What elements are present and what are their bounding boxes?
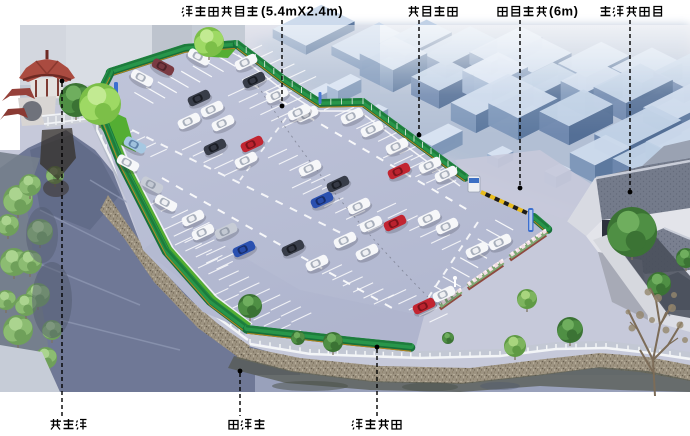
svg-text:(6m): (6m) [549,4,578,19]
svg-text:(5.4mX2.4m): (5.4mX2.4m) [261,4,343,19]
